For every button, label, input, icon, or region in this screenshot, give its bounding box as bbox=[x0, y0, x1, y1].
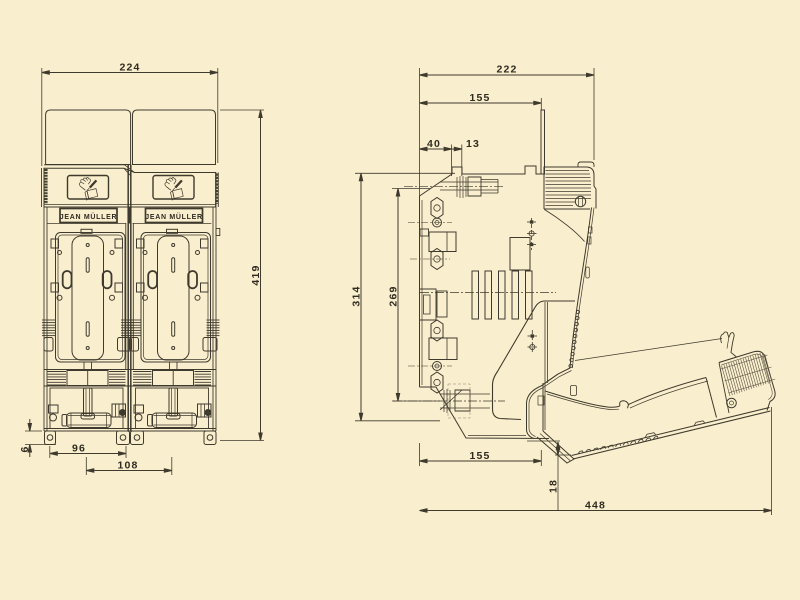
svg-text:96: 96 bbox=[72, 443, 86, 455]
svg-text:222: 222 bbox=[496, 64, 517, 76]
svg-text:18: 18 bbox=[547, 479, 559, 493]
svg-text:448: 448 bbox=[585, 499, 606, 511]
svg-text:155: 155 bbox=[469, 450, 490, 462]
svg-text:108: 108 bbox=[117, 460, 138, 472]
svg-text:314: 314 bbox=[350, 285, 362, 306]
svg-text:269: 269 bbox=[387, 285, 399, 306]
svg-text:40: 40 bbox=[427, 138, 441, 150]
svg-text:155: 155 bbox=[469, 92, 490, 104]
svg-text:419: 419 bbox=[250, 264, 262, 285]
svg-text:224: 224 bbox=[119, 62, 140, 74]
svg-text:13: 13 bbox=[466, 138, 480, 150]
svg-text:6: 6 bbox=[19, 445, 31, 452]
